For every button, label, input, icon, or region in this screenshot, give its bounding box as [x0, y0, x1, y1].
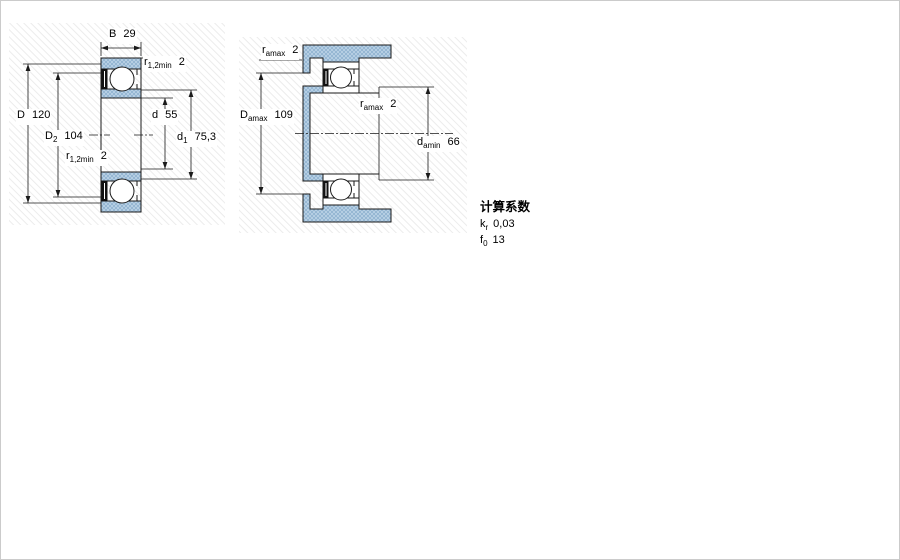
dim-subscript: amax: [248, 114, 268, 123]
factor-value: 0,03: [493, 218, 514, 230]
dim-value: 104: [64, 130, 82, 142]
dim-subscript: 1: [183, 136, 187, 145]
dim-label-D: D120: [16, 109, 51, 125]
calculation-factors-heading: 计算系数: [480, 196, 530, 215]
dim-label-Damax: Damax109: [239, 109, 294, 125]
factor-kr: kr0,03: [480, 218, 515, 232]
factor-subscript: 0: [483, 239, 487, 248]
ball-top: [110, 67, 134, 91]
dim-subscript: amax: [266, 49, 286, 58]
dim-label-ramax-top: ramax2: [261, 44, 299, 60]
bearing-section-top: [323, 62, 359, 93]
dim-label-B: B29: [108, 28, 137, 44]
factor-f0: f013: [480, 234, 505, 248]
dim-value: 2: [292, 44, 298, 56]
dim-subscript: amax: [364, 103, 384, 112]
dim-symbol: D: [240, 109, 248, 121]
dim-value: 55: [165, 109, 177, 121]
ball-top: [331, 67, 352, 88]
ball-bottom: [110, 179, 134, 203]
dim-label-damin: damin66: [416, 136, 461, 152]
dim-symbol: B: [109, 28, 116, 40]
dim-subscript: 1,2min: [70, 155, 94, 164]
dim-value: 120: [32, 109, 50, 121]
factor-value: 13: [493, 234, 505, 246]
dim-subscript: 2: [53, 135, 57, 144]
right-figure-mounting: [239, 37, 467, 233]
factor-subscript: r: [486, 223, 489, 232]
dim-value: 2: [390, 98, 396, 110]
dim-value: 66: [447, 136, 459, 148]
dim-subscript: amin: [423, 141, 440, 150]
bearing-dimension-drawing: B29 r1,2min2 D120 D2104 r1,2min2 d55 d17…: [0, 0, 900, 560]
dim-label-r12min: r1,2min2: [65, 150, 108, 166]
dim-label-d1: d175,3: [176, 131, 217, 147]
ball-bottom: [331, 179, 352, 200]
dim-label-d: d55: [151, 109, 178, 125]
dim-symbol: d: [152, 109, 158, 121]
dim-subscript: 1,2min: [148, 61, 172, 70]
dim-value: 29: [123, 28, 135, 40]
bearing-section-bottom: [323, 174, 359, 205]
dim-value: 2: [101, 150, 107, 162]
dim-label-D2: D2104: [44, 130, 84, 146]
dim-label-ramax: ramax2: [359, 98, 397, 114]
dim-symbol: D: [45, 130, 53, 142]
dim-value: 2: [179, 56, 185, 68]
dim-symbol: D: [17, 109, 25, 121]
technical-drawing: [1, 1, 900, 560]
dim-value: 75,3: [195, 131, 216, 143]
dim-value: 109: [275, 109, 293, 121]
dim-label-r12min-top: r1,2min2: [143, 56, 186, 72]
